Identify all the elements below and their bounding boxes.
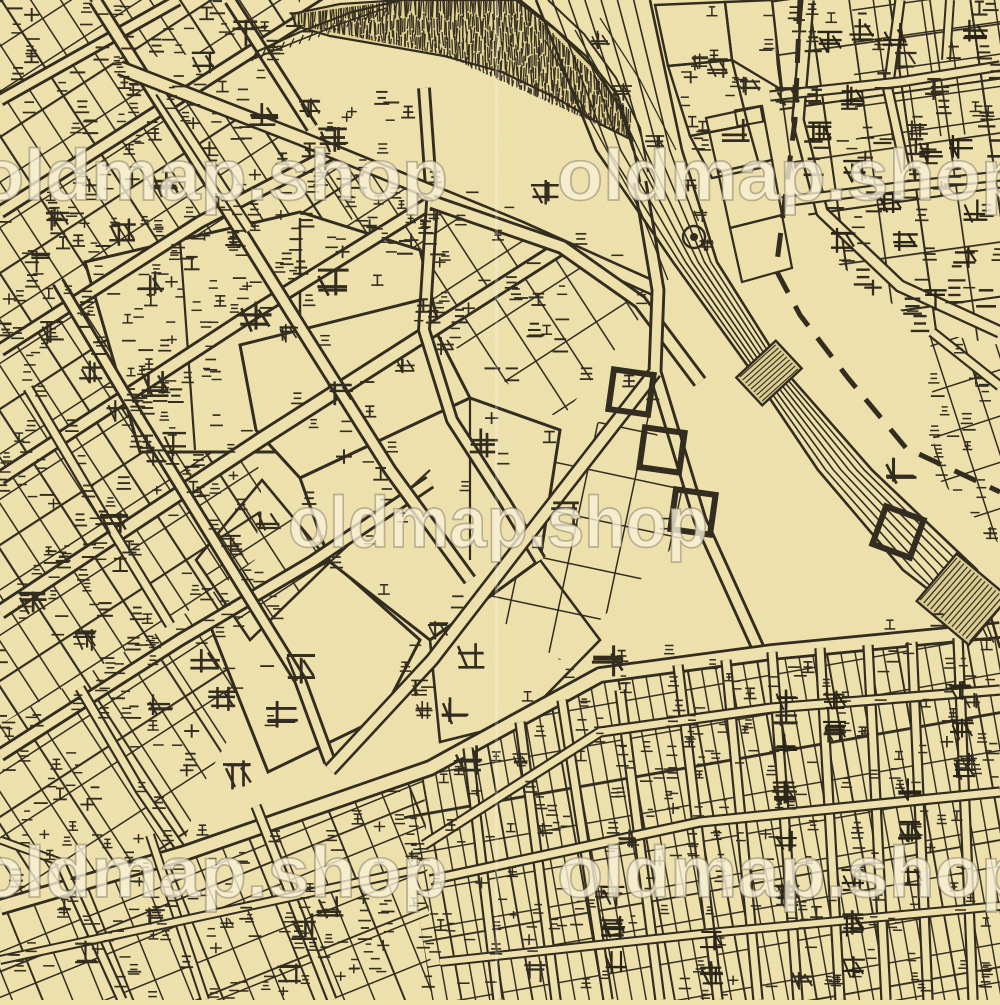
svg-text:oldmap.shop: oldmap.shop — [288, 483, 708, 563]
svg-text:oldmap.shop: oldmap.shop — [0, 833, 448, 913]
svg-text:oldmap.shop: oldmap.shop — [557, 833, 1000, 913]
svg-text:oldmap.shop: oldmap.shop — [557, 136, 1000, 216]
svg-text:oldmap.shop: oldmap.shop — [0, 136, 448, 216]
